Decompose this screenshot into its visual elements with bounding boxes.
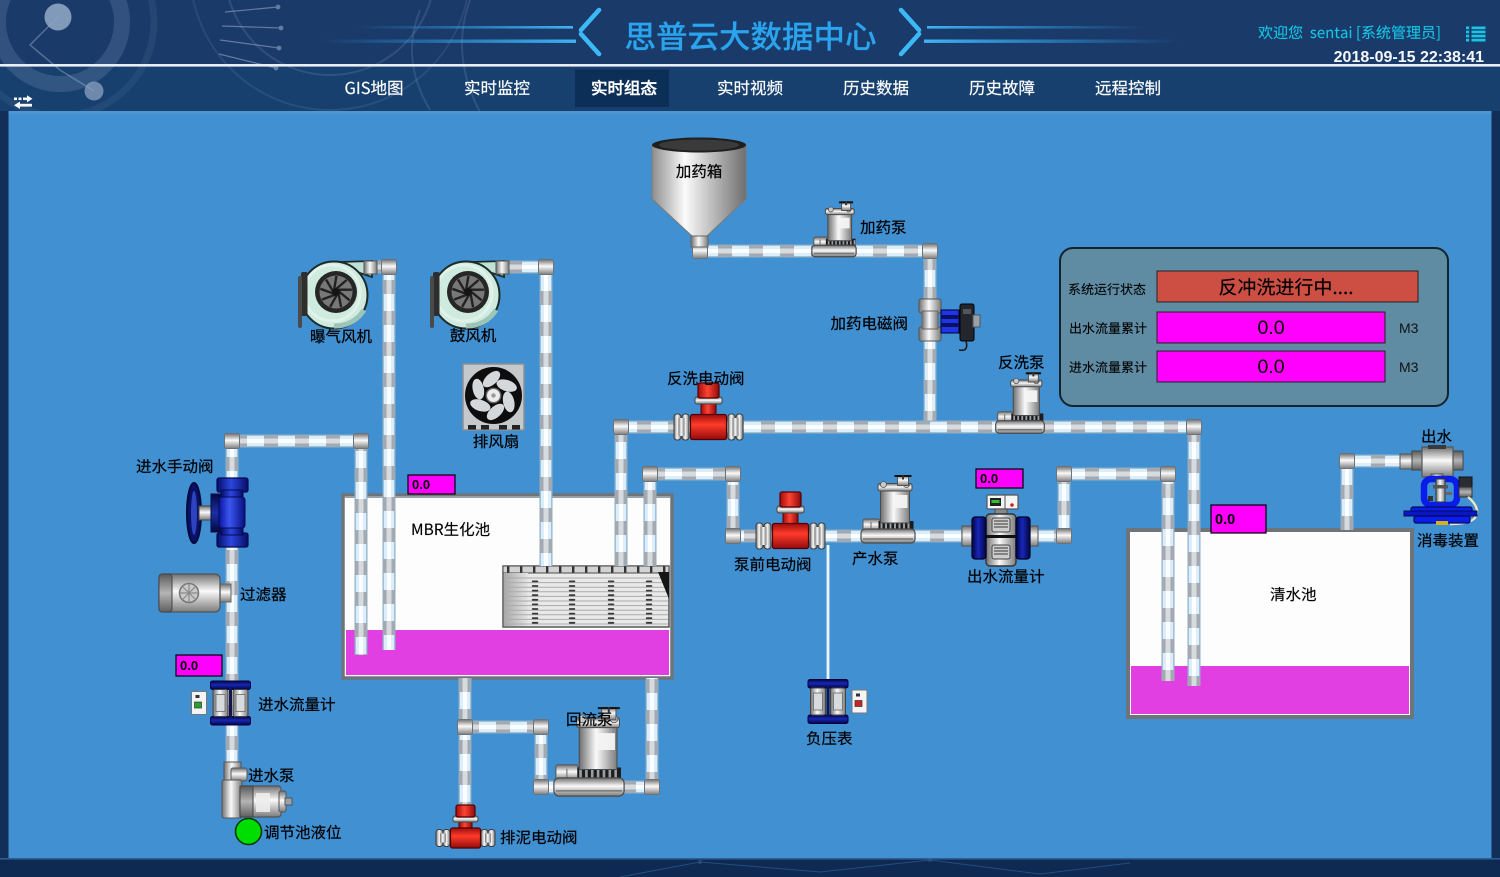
svg-text:0.0: 0.0 <box>1215 512 1235 528</box>
svg-text:2018-09-15 22:38:41: 2018-09-15 22:38:41 <box>1334 49 1484 66</box>
svg-text:0.0: 0.0 <box>412 477 430 492</box>
svg-text:0.0: 0.0 <box>1257 317 1284 339</box>
svg-text:0.0: 0.0 <box>1257 356 1284 378</box>
svg-text:M3: M3 <box>1399 359 1419 375</box>
svg-text:0.0: 0.0 <box>180 658 198 673</box>
svg-text:0.0: 0.0 <box>980 471 998 486</box>
svg-text:M3: M3 <box>1399 320 1419 336</box>
